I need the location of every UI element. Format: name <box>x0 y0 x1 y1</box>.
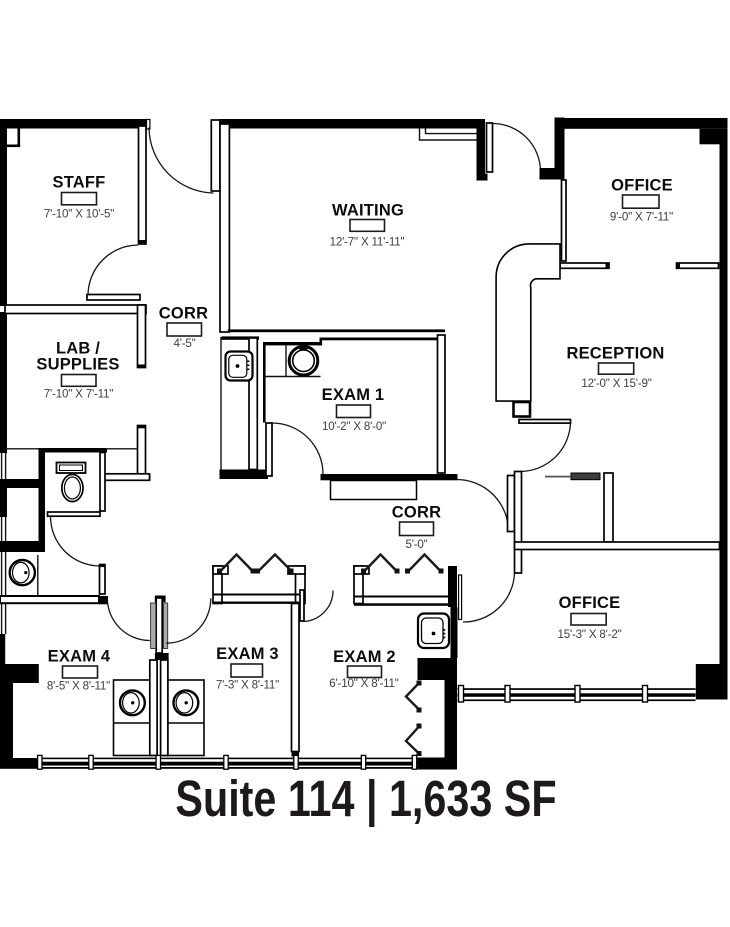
svg-text:7'-10" X 7'-11": 7'-10" X 7'-11" <box>44 388 113 401</box>
svg-text:15'-3" X 8'-2": 15'-3" X 8'-2" <box>558 628 622 641</box>
svg-text:CORR: CORR <box>392 504 441 522</box>
svg-text:12'-7" X 11'-11": 12'-7" X 11'-11" <box>330 236 405 249</box>
svg-text:CORR: CORR <box>159 305 208 323</box>
svg-text:RECEPTION: RECEPTION <box>566 345 664 363</box>
svg-text:9'-0" X 7'-11": 9'-0" X 7'-11" <box>610 211 673 224</box>
svg-text:10'-2" X 8'-0": 10'-2" X 8'-0" <box>322 420 386 433</box>
svg-text:SUPPLIES: SUPPLIES <box>36 356 119 374</box>
svg-text:STAFF: STAFF <box>53 174 106 192</box>
svg-text:OFFICE: OFFICE <box>611 177 673 195</box>
svg-text:8'-5" X 8'-11": 8'-5" X 8'-11" <box>47 680 110 693</box>
svg-text:12'-0" X 15'-9": 12'-0" X 15'-9" <box>581 377 651 390</box>
svg-text:6'-10" X 8'-11": 6'-10" X 8'-11" <box>329 677 398 690</box>
svg-text:EXAM 3: EXAM 3 <box>216 645 279 663</box>
svg-text:OFFICE: OFFICE <box>559 594 621 612</box>
svg-text:WAITING: WAITING <box>332 202 404 220</box>
svg-text:4'-5": 4'-5" <box>173 337 195 350</box>
svg-text:7'-10" X 10'-5": 7'-10" X 10'-5" <box>44 208 114 221</box>
svg-text:EXAM 2: EXAM 2 <box>333 648 396 666</box>
svg-text:7'-3" X 8'-11": 7'-3" X 8'-11" <box>216 679 279 692</box>
svg-text:EXAM 1: EXAM 1 <box>322 386 385 404</box>
svg-text:EXAM 4: EXAM 4 <box>48 648 111 666</box>
svg-text:Suite 114 | 1,633 SF: Suite 114 | 1,633 SF <box>175 770 556 827</box>
svg-text:5'-0": 5'-0" <box>405 538 427 551</box>
